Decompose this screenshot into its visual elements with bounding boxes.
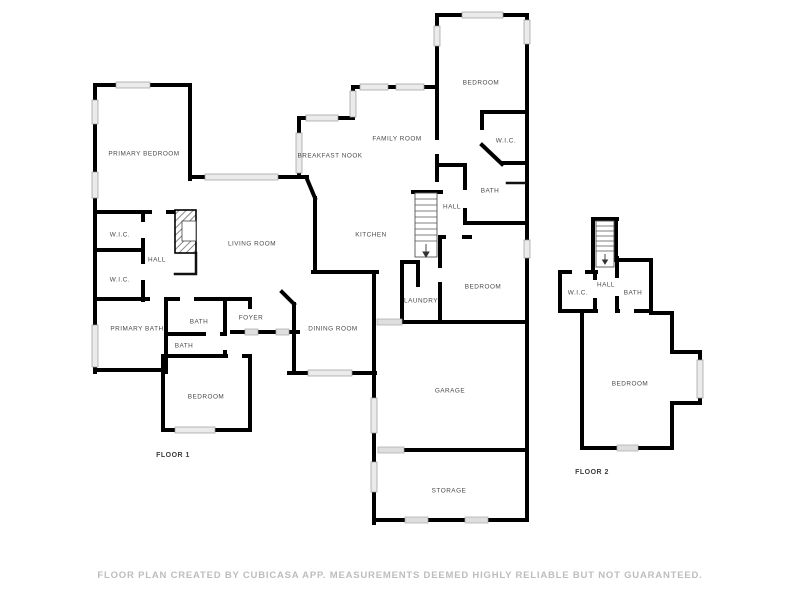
room-label-laundry: LAUNDRY <box>404 298 438 305</box>
room-label-primary-bath: PRIMARY BATH <box>110 326 163 333</box>
room-label-bedroom: BEDROOM <box>188 394 225 401</box>
room-label-garage: GARAGE <box>435 388 465 395</box>
room-label-dining-room: DINING ROOM <box>308 326 358 333</box>
room-label-kitchen: KITCHEN <box>355 232 387 239</box>
floor-name-1: FLOOR 1 <box>156 452 190 459</box>
room-label-bedroom: BEDROOM <box>465 284 502 291</box>
room-label-hall: HALL <box>148 257 166 264</box>
stairs-floor-1-icon <box>415 193 437 257</box>
floor1-labels: PRIMARY BEDROOMLIVING ROOMBEDROOMW.I.C.B… <box>108 80 516 495</box>
floor1-walls <box>95 15 527 523</box>
floor2-thresholds <box>617 445 638 451</box>
floor2-plan <box>560 219 703 451</box>
room-label-hall: HALL <box>443 204 461 211</box>
room-label-bath: BATH <box>624 290 643 297</box>
room-label-bath: BATH <box>190 319 209 326</box>
room-label-breakfast-nook: BREAKFAST NOOK <box>297 153 362 160</box>
room-label-w-i-c-: W.I.C. <box>110 277 130 284</box>
floor-plan-page: PRIMARY BEDROOMLIVING ROOMBEDROOMW.I.C.B… <box>0 0 800 600</box>
stairs-floor-2-icon <box>596 221 614 267</box>
room-label-w-i-c-: W.I.C. <box>110 232 130 239</box>
room-label-primary-bedroom: PRIMARY BEDROOM <box>108 151 179 158</box>
room-label-bedroom: BEDROOM <box>612 381 649 388</box>
room-label-w-i-c-: W.I.C. <box>496 138 516 145</box>
room-label-living-room: LIVING ROOM <box>228 241 276 248</box>
floor2-windows <box>697 360 703 398</box>
fireplace-icon <box>175 210 196 253</box>
room-label-w-i-c-: W.I.C. <box>568 290 588 297</box>
room-label-bath: BATH <box>481 188 500 195</box>
floor1-plan <box>92 12 530 523</box>
floor2-walls <box>560 219 700 448</box>
disclaimer-text: FLOOR PLAN CREATED BY CUBICASA APP. MEAS… <box>0 570 800 581</box>
floor1-interior-thin-walls <box>175 183 525 274</box>
room-label-family-room: FAMILY ROOM <box>372 136 421 143</box>
room-label-bedroom: BEDROOM <box>463 80 500 87</box>
room-label-foyer: FOYER <box>239 315 264 322</box>
room-label-storage: STORAGE <box>432 488 467 495</box>
floorplan-canvas: PRIMARY BEDROOMLIVING ROOMBEDROOMW.I.C.B… <box>0 0 800 600</box>
room-label-bath: BATH <box>175 343 194 350</box>
floor-name-2: FLOOR 2 <box>575 469 609 476</box>
room-label-hall: HALL <box>597 282 615 289</box>
